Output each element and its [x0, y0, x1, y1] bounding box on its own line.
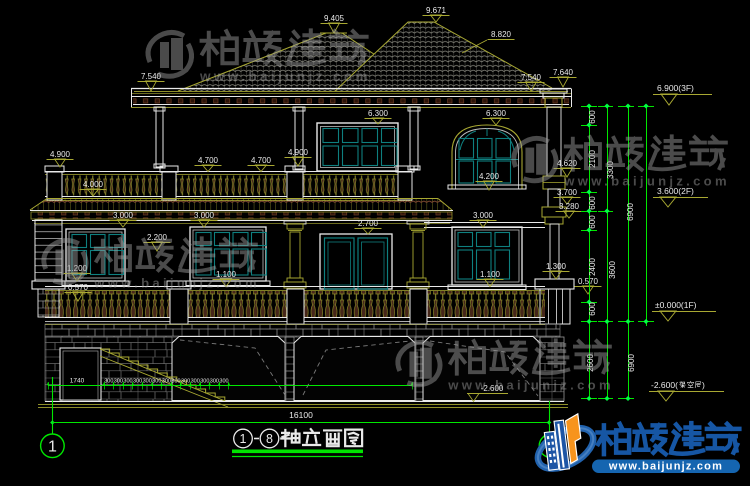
svg-text:): ) — [702, 380, 705, 390]
svg-text:www.baijunjz.com: www.baijunjz.com — [447, 377, 614, 392]
svg-text:300: 300 — [152, 379, 161, 385]
svg-text:300: 300 — [104, 379, 113, 385]
svg-text:300: 300 — [219, 379, 228, 385]
svg-text:1740: 1740 — [70, 378, 85, 385]
svg-text:1: 1 — [240, 432, 247, 446]
svg-text:1.100: 1.100 — [480, 270, 501, 279]
svg-text:±0.000(1F): ±0.000(1F) — [655, 300, 697, 310]
svg-text:1.300: 1.300 — [546, 262, 567, 271]
svg-text:6.300: 6.300 — [368, 109, 389, 118]
svg-text:300: 300 — [114, 379, 123, 385]
svg-text:4.700: 4.700 — [198, 156, 219, 165]
svg-text:7.640: 7.640 — [553, 68, 574, 77]
svg-text:300: 300 — [181, 379, 190, 385]
svg-text:8.820: 8.820 — [491, 30, 512, 39]
svg-text:7.540: 7.540 — [521, 73, 542, 82]
svg-text:4.700: 4.700 — [251, 156, 272, 165]
svg-text:600: 600 — [588, 110, 597, 124]
svg-text:3600: 3600 — [608, 261, 617, 279]
svg-text:www.baijunjz.com: www.baijunjz.com — [93, 275, 260, 290]
svg-text:www.baijunjz.com: www.baijunjz.com — [563, 173, 730, 188]
svg-text:8: 8 — [266, 432, 273, 446]
svg-text:9.405: 9.405 — [324, 14, 345, 23]
svg-text:600: 600 — [588, 302, 597, 316]
svg-text:3.000: 3.000 — [194, 211, 215, 220]
svg-text:300: 300 — [143, 379, 152, 385]
svg-text:16100: 16100 — [289, 410, 313, 420]
svg-text:4.000: 4.000 — [83, 180, 104, 189]
svg-text:300: 300 — [133, 379, 142, 385]
svg-text:3.280: 3.280 — [559, 202, 580, 211]
svg-text:3.000: 3.000 — [113, 211, 134, 220]
svg-text:4.900: 4.900 — [288, 148, 309, 157]
svg-text:4.900: 4.900 — [50, 150, 71, 159]
svg-text:600: 600 — [588, 196, 597, 210]
svg-text:3.700: 3.700 — [557, 188, 578, 197]
svg-text:6900: 6900 — [627, 354, 636, 372]
svg-text:3.000: 3.000 — [473, 211, 494, 220]
svg-text:2400: 2400 — [588, 258, 597, 276]
svg-text:300: 300 — [210, 379, 219, 385]
svg-text:-2.600(: -2.600( — [651, 380, 678, 390]
svg-text:1: 1 — [48, 439, 57, 456]
svg-text:300: 300 — [162, 379, 171, 385]
svg-text:www.baijunjz.com: www.baijunjz.com — [199, 69, 371, 84]
svg-text:6.900(3F): 6.900(3F) — [657, 83, 694, 93]
svg-text:600: 600 — [588, 215, 597, 229]
svg-text:300: 300 — [191, 379, 200, 385]
svg-text:2.700: 2.700 — [358, 219, 379, 228]
svg-text:6900: 6900 — [626, 203, 635, 221]
svg-text:6.300: 6.300 — [486, 109, 507, 118]
svg-text:0.570: 0.570 — [578, 277, 599, 286]
svg-text:300: 300 — [123, 379, 132, 385]
svg-text:www.baijunjz.com: www.baijunjz.com — [608, 461, 723, 473]
svg-text:300: 300 — [171, 379, 180, 385]
svg-text:300: 300 — [200, 379, 209, 385]
svg-text:9.671: 9.671 — [426, 6, 447, 15]
svg-text:4.200: 4.200 — [479, 172, 500, 181]
svg-text:2100: 2100 — [588, 150, 597, 168]
